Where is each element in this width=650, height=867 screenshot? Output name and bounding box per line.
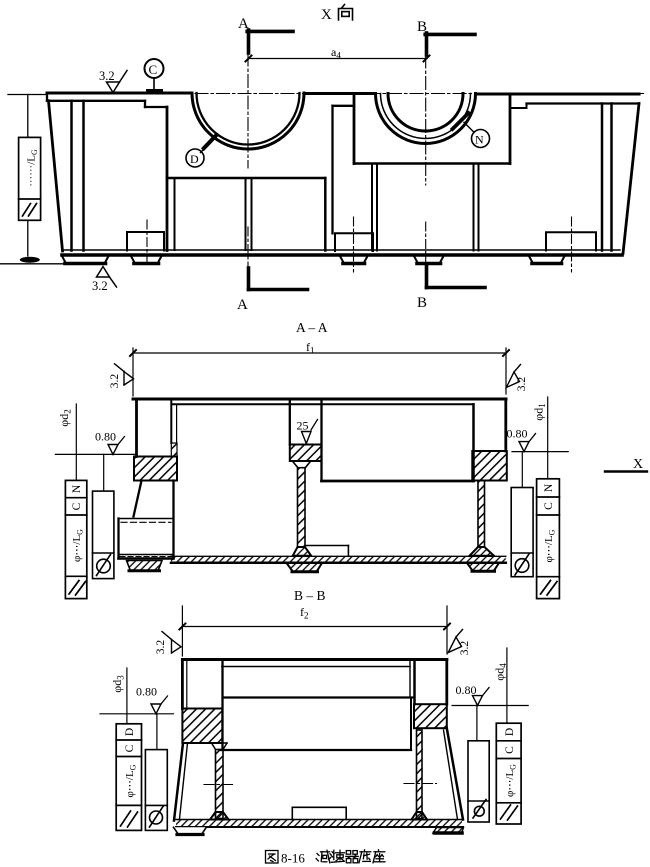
svg-text:0.80: 0.80: [136, 685, 157, 699]
svg-text:0.80: 0.80: [507, 427, 528, 441]
svg-text:X: X: [321, 7, 332, 23]
svg-text:A: A: [238, 16, 249, 32]
svg-text:B – B: B – B: [294, 588, 326, 603]
svg-text:A – A: A – A: [296, 320, 328, 335]
svg-text:B: B: [417, 19, 427, 35]
svg-text:25: 25: [297, 419, 309, 433]
svg-text:3.2: 3.2: [109, 374, 121, 389]
svg-text:0.80: 0.80: [95, 430, 116, 444]
svg-text:D: D: [504, 728, 516, 736]
svg-text:3.2: 3.2: [516, 377, 528, 392]
svg-text:D: D: [124, 728, 136, 736]
svg-text:C: C: [543, 502, 555, 510]
svg-text:C: C: [71, 502, 83, 510]
svg-text:3.2: 3.2: [92, 279, 108, 293]
svg-text:N: N: [543, 483, 555, 492]
svg-text:C: C: [124, 744, 136, 752]
svg-text:3.2: 3.2: [99, 69, 115, 83]
svg-text:X: X: [633, 457, 643, 472]
svg-text:D: D: [190, 152, 199, 166]
svg-text:N: N: [71, 484, 83, 493]
svg-text:3.2: 3.2: [155, 640, 167, 655]
svg-text:N: N: [475, 133, 484, 147]
svg-text:C: C: [504, 746, 516, 754]
svg-text:C: C: [149, 62, 158, 77]
svg-text:3.2: 3.2: [459, 641, 471, 656]
svg-text:A: A: [237, 297, 248, 313]
svg-text:8-16: 8-16: [281, 851, 305, 866]
svg-text:B: B: [417, 295, 427, 311]
